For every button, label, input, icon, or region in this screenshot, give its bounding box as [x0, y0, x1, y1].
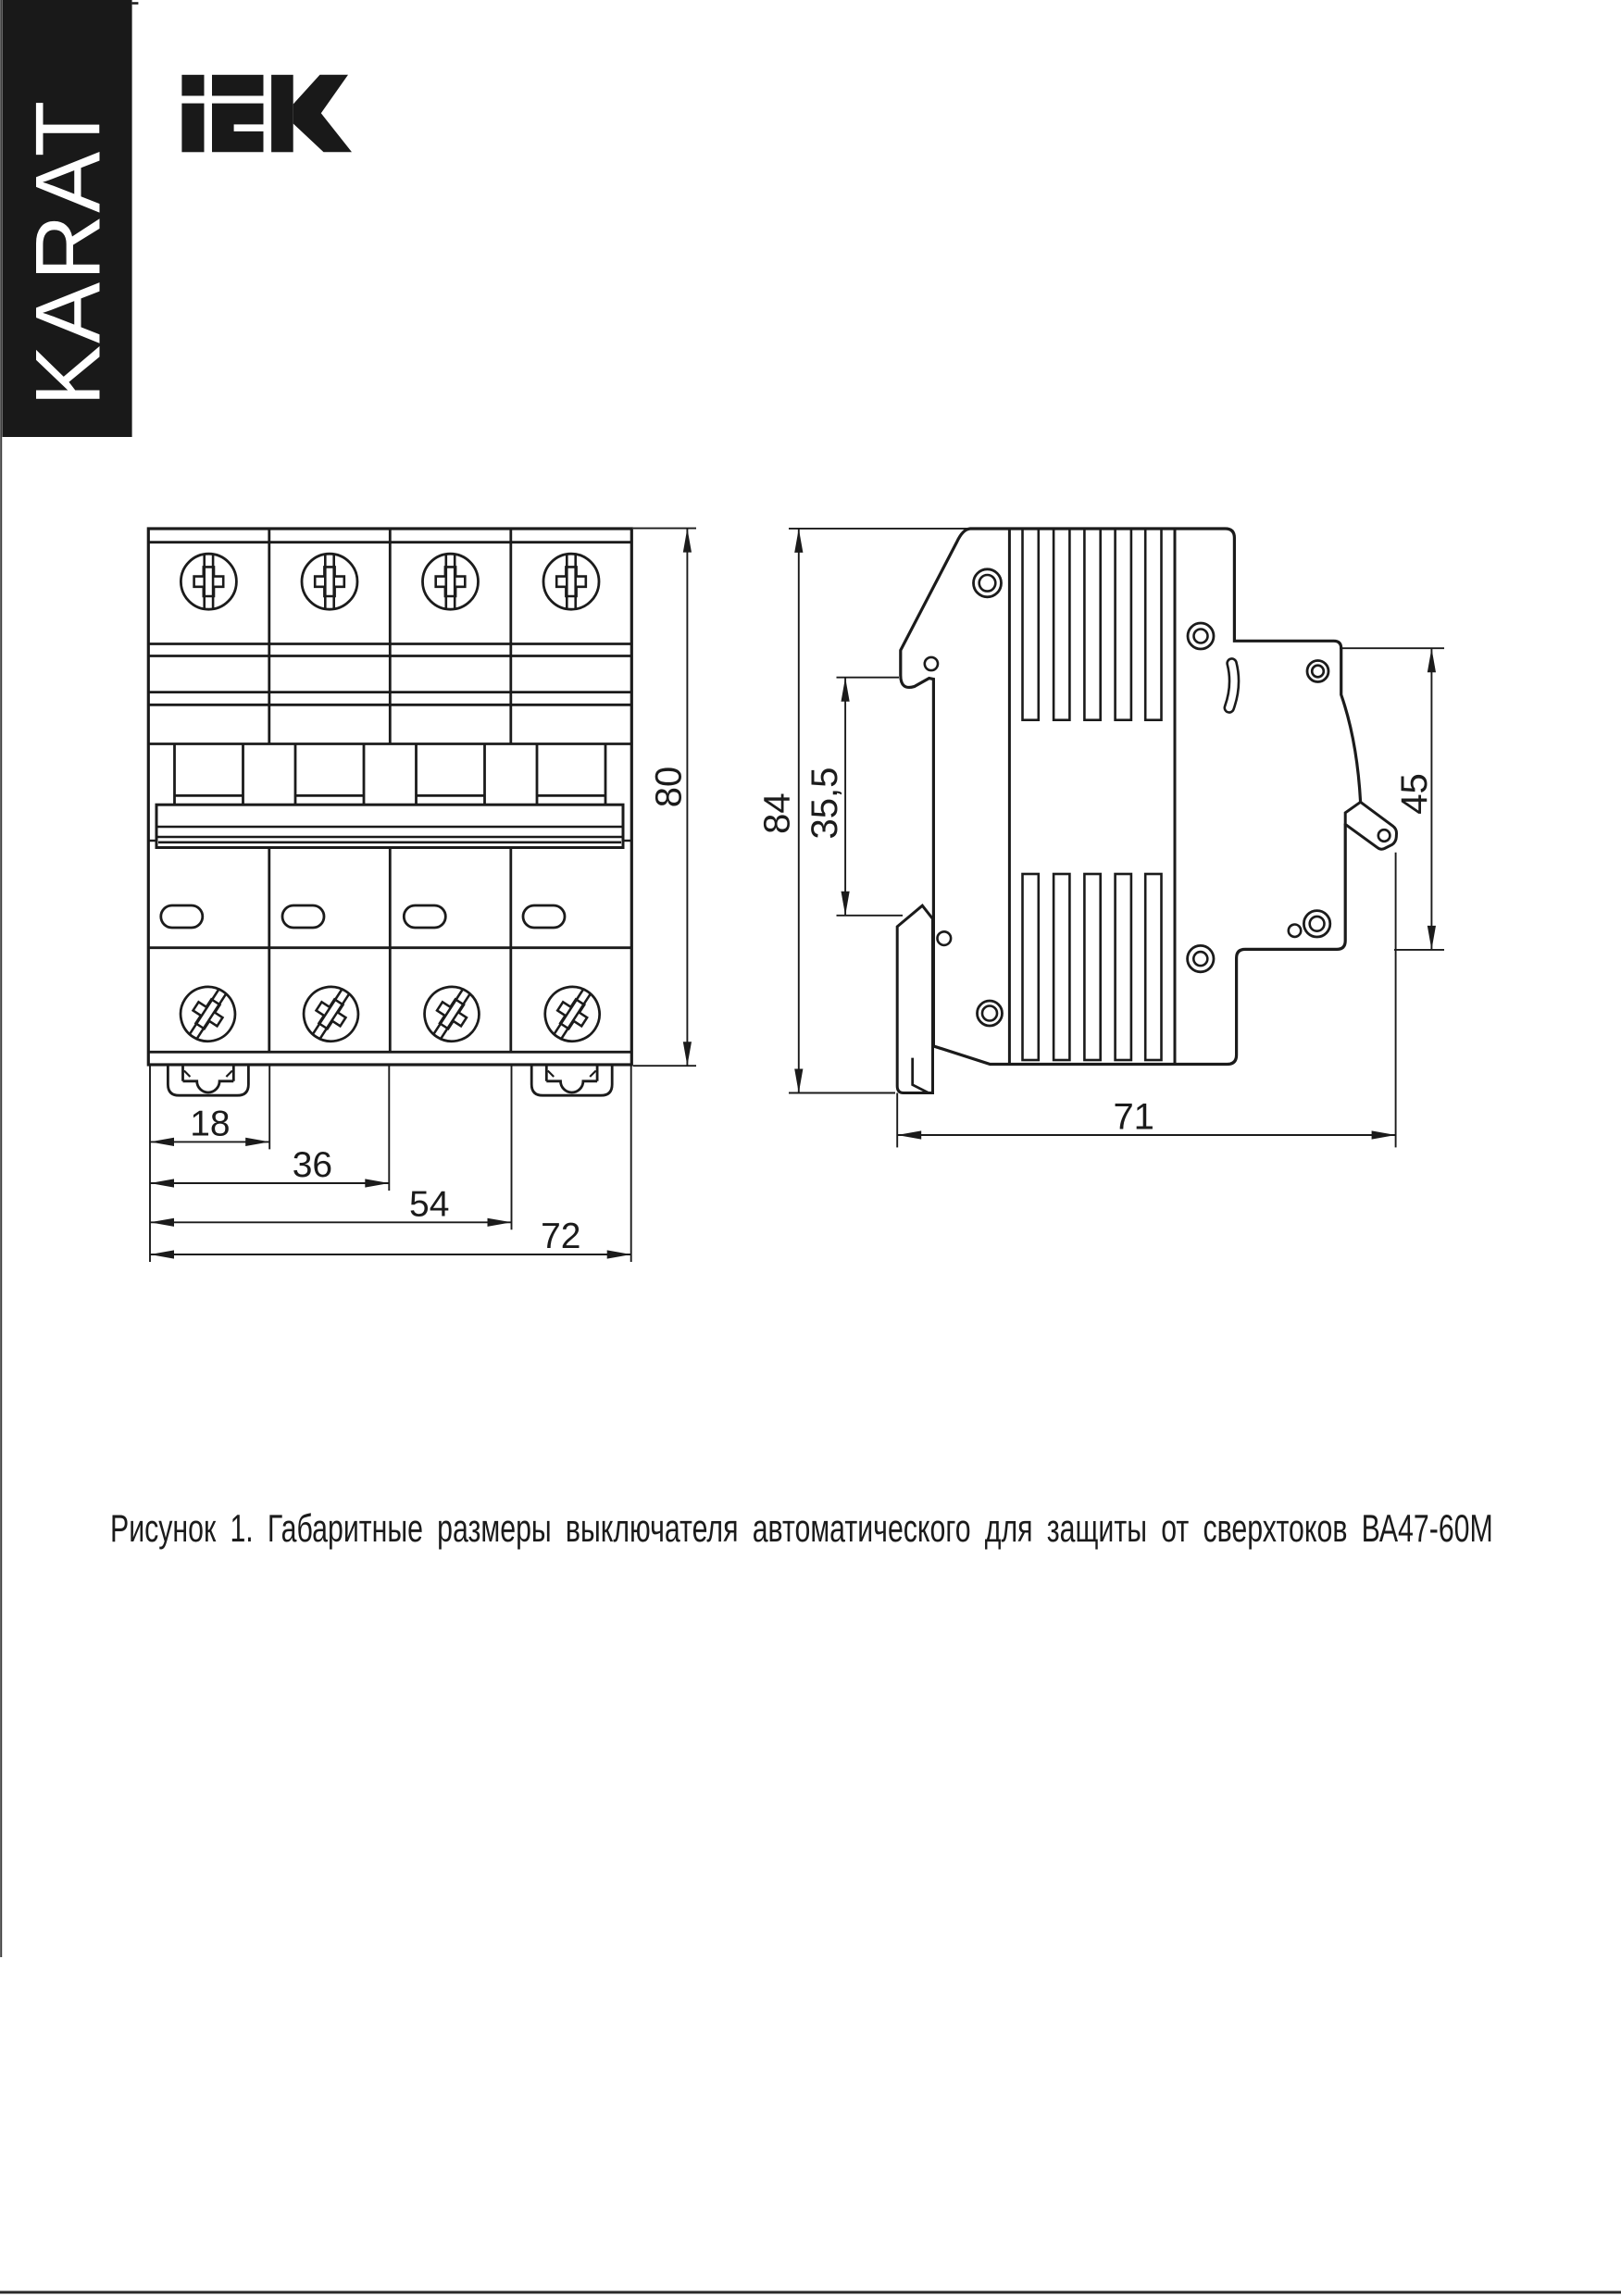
svg-text:80: 80: [649, 767, 690, 808]
svg-text:35,5: 35,5: [804, 767, 845, 840]
svg-text:36: 36: [293, 1145, 332, 1185]
svg-text:72: 72: [541, 1217, 580, 1256]
svg-text:Рисунок 1. Габаритные размеры: Рисунок 1. Габаритные размеры выключател…: [110, 1506, 1493, 1550]
svg-text:54: 54: [409, 1184, 449, 1224]
svg-text:KARAT: KARAT: [17, 99, 119, 406]
svg-text:45: 45: [1394, 773, 1435, 815]
svg-text:84: 84: [757, 792, 798, 834]
svg-text:18: 18: [190, 1104, 230, 1143]
svg-text:71: 71: [1113, 1097, 1154, 1138]
